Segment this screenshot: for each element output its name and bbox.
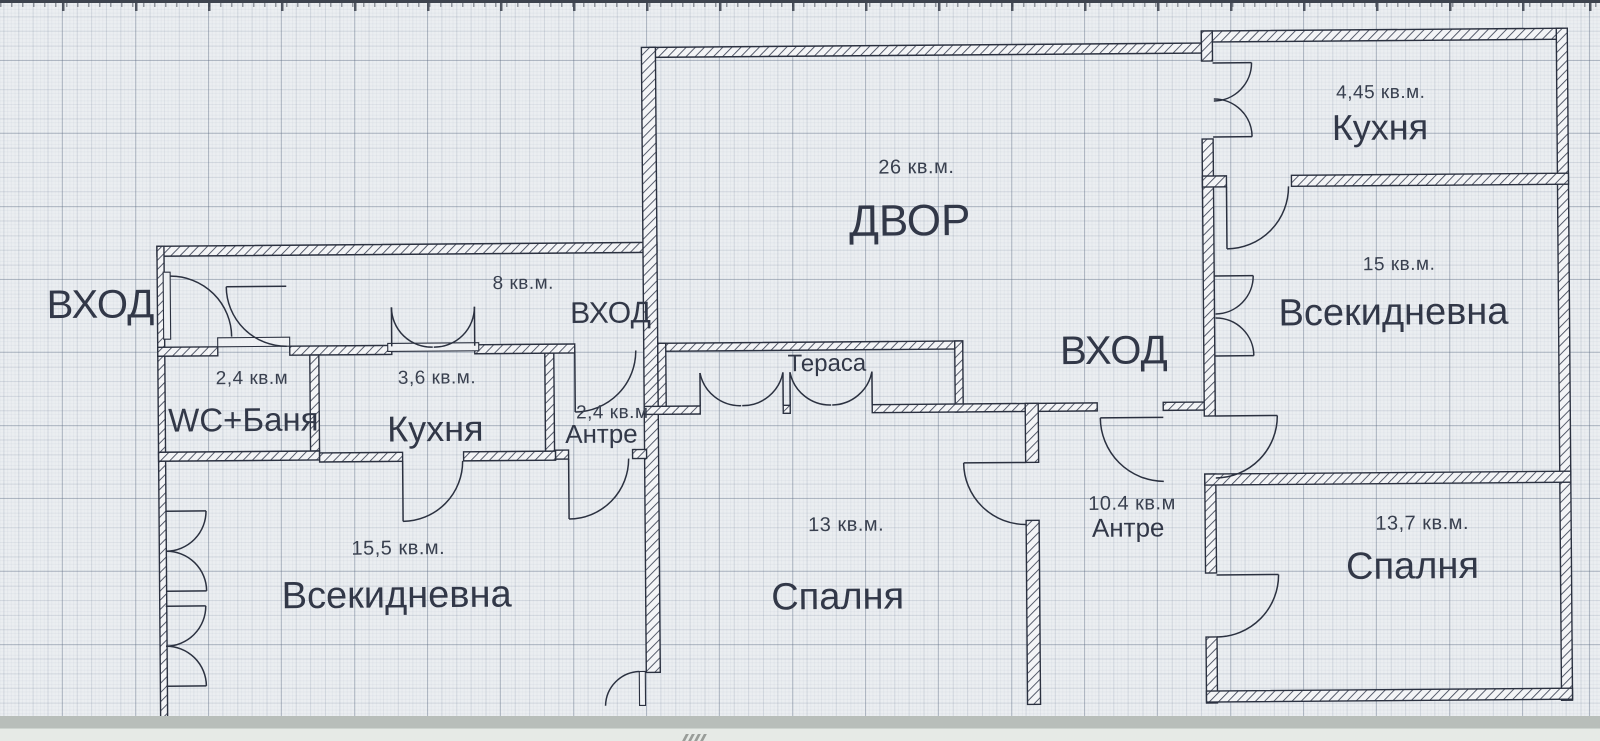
wall-segment [633,449,647,458]
wall-segment [872,403,1097,413]
yard-area-label: 26 кв.м. [878,157,954,178]
wall-segment [658,343,667,414]
wall-segment [1205,474,1217,573]
room-name-label: Антре [565,420,638,447]
wall-segment [1163,402,1204,410]
window-swing-arc [166,511,206,551]
living-left-bedroom-door [605,671,645,705]
kitchen-right-double-door [1213,63,1253,137]
room-area-label: 15,5 кв.м. [351,538,445,559]
door-swing-arc [403,461,463,521]
wall-segment [475,344,575,354]
room-area-label: 13 кв.м. [808,515,884,536]
entrance-door-3 [1100,417,1164,481]
wall-segment [320,452,403,462]
entrance-label-1: ВХОД [46,284,154,325]
paper-edge-light [0,728,1600,741]
room-name-label: Спалня [1346,547,1479,586]
window-swing-arc [166,646,206,686]
door-swing-arc [1214,63,1252,101]
room-name-label: Кухня [1332,109,1429,146]
door-swing-arc [1217,574,1279,636]
room-area-label: 3,6 кв.м. [398,368,476,388]
entrance-label-3: ВХОД [1060,330,1168,371]
kitchen-right-to-living-door [1226,186,1288,248]
room-area-label: 15 кв.м. [1363,255,1436,275]
wall-segment [545,353,555,451]
wall-segment [157,242,657,256]
wall-segment [1205,471,1571,485]
terrace-name-label: Тераса [787,352,866,377]
door-swing-arc [1100,417,1164,481]
kitchen-left-window [387,307,478,352]
living-left-windows [165,511,207,686]
antre-small-inner-door [569,459,629,519]
window-sill [388,343,479,352]
wall-segment [1026,520,1040,704]
door-swing-arc [569,459,629,519]
wall-segment [1202,176,1226,187]
entrance-door-1 [163,271,290,347]
wall-segment [1025,403,1038,462]
wall-segment [159,451,320,461]
bedroom-middle-walls [1025,403,1040,704]
door-swing-arc [700,373,741,406]
wall-segment [1206,688,1572,702]
entrance-label-2: ВХОД [570,298,651,329]
room-name-label: Антре [1092,514,1165,541]
wall-segment [644,406,700,414]
wall-segment [1556,28,1572,700]
door-leaf [163,272,171,339]
wall-segment [1291,173,1568,186]
room-area-label: 10.4 кв.м [1088,493,1176,514]
door-leaf [639,671,645,705]
room-name-label: Кухня [387,411,484,448]
wall-segment [955,341,964,412]
hallway-area-label: 8 кв.м. [492,274,554,293]
room-name-label: WC+Баня [168,402,319,436]
wall-segment [158,347,218,356]
wall-segment [556,450,569,459]
window-swing-arc [166,551,206,591]
door-swing-arc [605,671,639,705]
room-area-label: 4,45 кв.м. [1336,83,1425,103]
bedroom-middle-door [964,462,1026,524]
plan-layer: ВХОД 8 кв.м. ВХОД 26 кв.м. ДВОР ВХОД Тер… [0,0,1600,741]
door-swing-arc [1214,99,1252,137]
floor-plan-photo: ВХОД 8 кв.м. ВХОД 26 кв.м. ДВОР ВХОД Тер… [0,0,1600,741]
door-swing-arc [964,462,1026,524]
door-swing-arc [170,276,231,337]
wall-segment [1201,28,1567,42]
room-area-label: 13,7 кв.м. [1375,513,1469,534]
door-swing-arc [1215,415,1277,477]
room-area-label: 2,4 кв.м [216,369,289,389]
yard-name-label: ДВОР [849,199,971,244]
door-swing-arc [1226,186,1288,248]
window-swing-arc [391,307,432,347]
door-swing-arc [1215,276,1253,314]
window-swing-arc [166,606,206,646]
yard-walls [649,43,1203,57]
antre-right-to-living-door [1215,415,1277,477]
room-name-label: Всекидневна [282,575,512,615]
wall-segment [1201,31,1212,61]
wall-segment [783,405,790,413]
paper-edge-band [0,716,1600,728]
door-swing-arc [1216,318,1254,356]
room-name-label: Всекидневна [1278,293,1508,333]
room-name-label: Спалня [771,577,904,616]
door-swing-arc [742,372,783,405]
wall-segment [464,451,556,461]
yard-top-wall [649,43,1203,57]
bedroom-right-door [1217,574,1279,636]
living-right-double-door [1214,276,1254,356]
kitchen-left-inner-door [403,461,463,521]
bottom-smudge-mark [684,734,712,741]
wall-segment [290,345,392,355]
window-swing-arc [433,307,474,347]
